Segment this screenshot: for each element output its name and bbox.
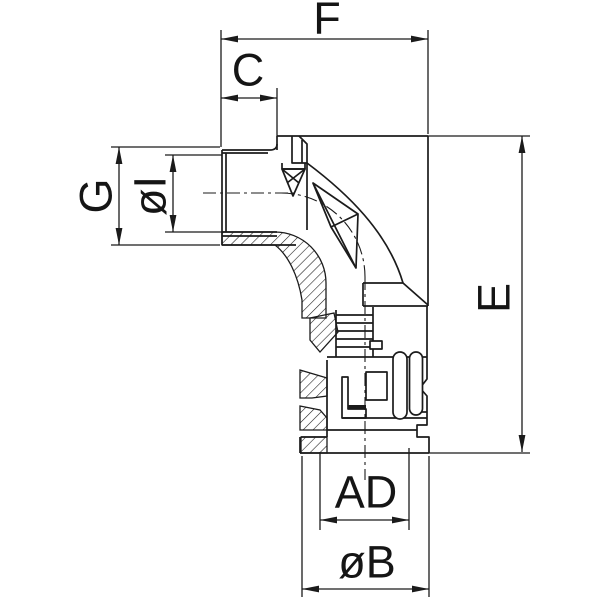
dimension-label-g: G — [71, 178, 122, 213]
dimension-label-ad: AD — [335, 467, 398, 518]
dimension-C: C — [221, 45, 277, 137]
elbow-fitting-technical-drawing: F C G øI E — [0, 0, 600, 600]
dimension-label-ob: øB — [338, 537, 396, 588]
dimension-label-oi: øI — [125, 176, 176, 216]
dimension-E: E — [428, 136, 530, 453]
drawing-canvas: F C G øI E — [0, 0, 600, 600]
dimension-label-f: F — [313, 0, 341, 44]
dimension-label-c: C — [232, 45, 265, 96]
dimension-label-e: E — [469, 283, 520, 313]
dimension-AD: AD — [320, 448, 409, 530]
section-hatching — [222, 232, 338, 453]
